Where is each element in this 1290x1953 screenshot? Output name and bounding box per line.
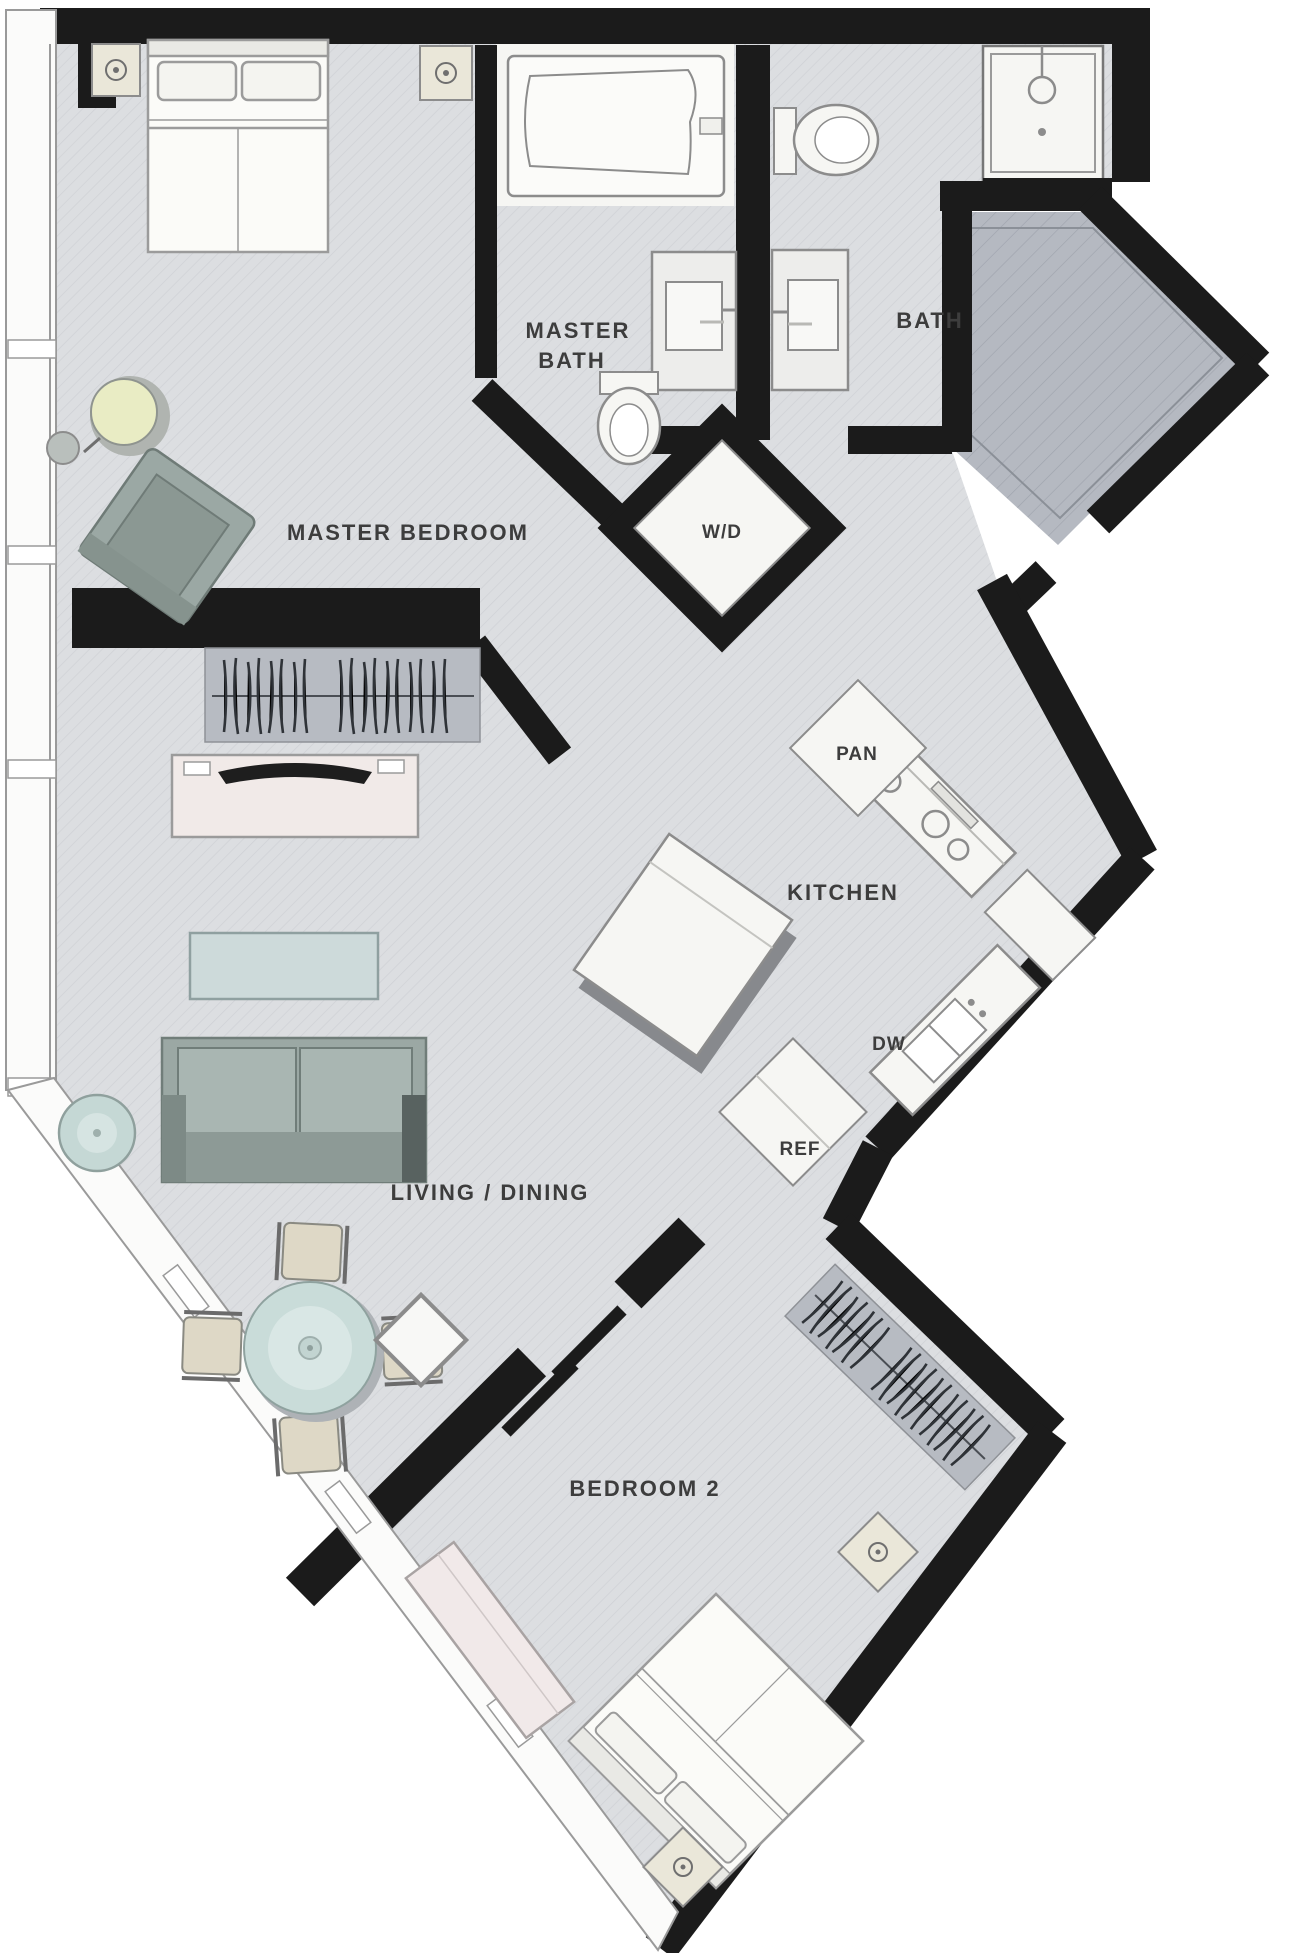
master-toilet (598, 372, 660, 464)
dining-chair-bottom (274, 1414, 346, 1477)
side-table (59, 1095, 135, 1171)
stool (47, 432, 79, 464)
master-closet-hangers (205, 648, 480, 742)
label-bedroom-2: BEDROOM 2 (569, 1476, 720, 1501)
king-bed (148, 40, 328, 252)
sofa (162, 1038, 426, 1182)
label-master-bath-line1: MASTER (526, 318, 631, 343)
master-vanity-sink (652, 252, 736, 390)
coffee-table (190, 933, 378, 999)
dining-chair-left (182, 1312, 242, 1380)
label-dishwasher: DW (872, 1034, 906, 1055)
label-bath: BATH (896, 308, 963, 333)
label-washer-dryer: W/D (702, 522, 742, 543)
floor-plan: MASTER BEDROOM MASTER BATH BATH W/D PAN … (0, 0, 1290, 1953)
bath-toilet (774, 105, 878, 175)
bath-vanity-sink (772, 250, 848, 390)
label-master-bedroom: MASTER BEDROOM (287, 520, 529, 545)
label-living-dining: LIVING / DINING (391, 1180, 590, 1205)
media-console-tv (172, 755, 418, 837)
window-wall-left (6, 10, 56, 1096)
label-refrigerator: REF (780, 1139, 821, 1160)
label-pantry: PAN (836, 744, 878, 765)
label-kitchen: KITCHEN (787, 880, 899, 905)
label-master-bath-line2: BATH (538, 348, 605, 373)
balcony-terrace (952, 212, 1245, 545)
nightstand-right (420, 46, 472, 100)
floor-plan-svg: MASTER BEDROOM MASTER BATH BATH W/D PAN … (0, 0, 1290, 1953)
bathtub (508, 56, 724, 196)
dining-chair-top (276, 1222, 347, 1283)
nightstand-left (92, 44, 140, 96)
